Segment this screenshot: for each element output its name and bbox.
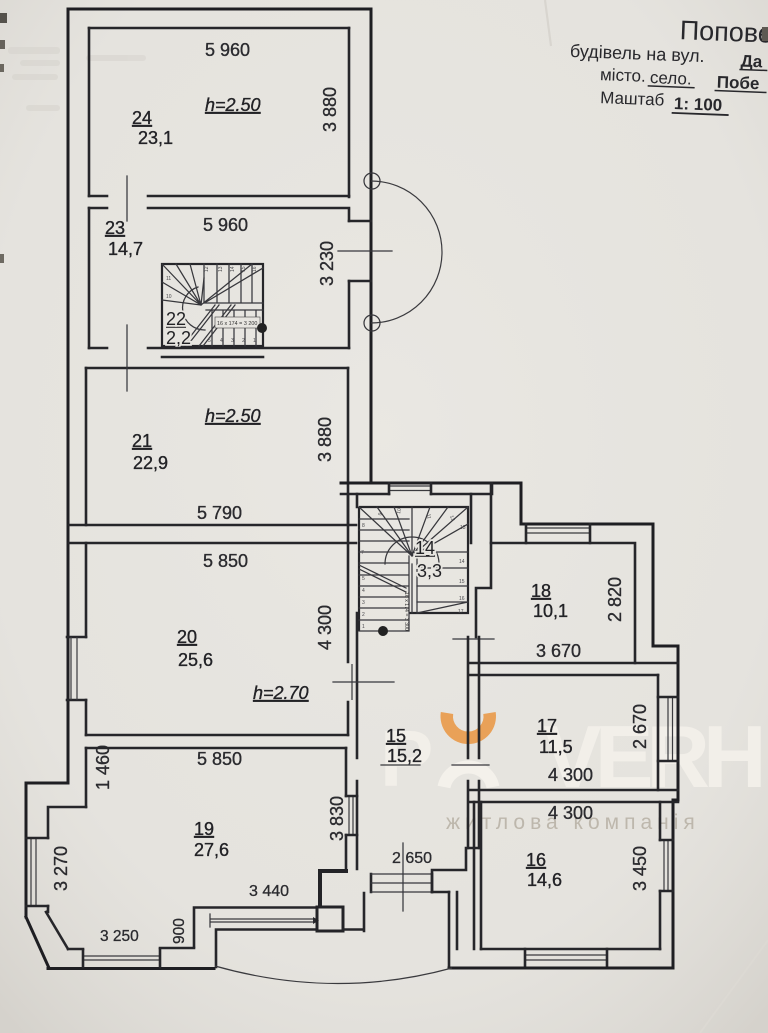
svg-text:5 850: 5 850 [203, 551, 248, 571]
svg-text:10: 10 [166, 294, 172, 300]
svg-text:2: 2 [242, 338, 245, 344]
svg-text:14,7: 14,7 [108, 239, 143, 259]
svg-text:23: 23 [105, 218, 125, 238]
svg-text:17: 17 [458, 609, 464, 615]
svg-text:12: 12 [204, 266, 210, 272]
svg-text:3 880: 3 880 [315, 417, 335, 462]
svg-text:14: 14 [230, 266, 236, 272]
svg-text:4: 4 [220, 338, 223, 344]
svg-text:15: 15 [241, 266, 247, 272]
svg-text:4 300: 4 300 [315, 605, 335, 650]
svg-text:3 830: 3 830 [327, 796, 347, 841]
svg-text:3 440: 3 440 [249, 883, 289, 900]
svg-text:23,1: 23,1 [138, 128, 173, 148]
svg-text:4 300: 4 300 [548, 765, 593, 785]
svg-text:1: 100: 1: 100 [674, 94, 723, 115]
svg-text:14,6: 14,6 [527, 870, 562, 890]
svg-text:2 820: 2 820 [605, 577, 625, 622]
svg-text:5 790: 5 790 [197, 503, 242, 523]
svg-text:22,9: 22,9 [133, 453, 168, 473]
svg-text:20: 20 [177, 627, 197, 647]
svg-text:h=2.50: h=2.50 [205, 95, 261, 115]
svg-text:15,2: 15,2 [387, 746, 422, 766]
svg-text:2 670: 2 670 [630, 704, 650, 749]
svg-text:11: 11 [166, 276, 171, 282]
svg-text:19: 19 [194, 819, 214, 839]
svg-text:17: 17 [537, 716, 557, 736]
svg-text:h=2.70: h=2.70 [253, 683, 309, 703]
svg-text:15: 15 [459, 579, 465, 585]
svg-text:3 270: 3 270 [51, 846, 71, 891]
svg-text:11,5: 11,5 [539, 737, 573, 757]
svg-text:21: 21 [132, 431, 152, 451]
svg-text:5: 5 [208, 338, 211, 344]
svg-text:1 460: 1 460 [93, 745, 113, 790]
svg-text:5 960: 5 960 [205, 40, 250, 60]
svg-text:13: 13 [218, 266, 224, 272]
svg-text:14: 14 [415, 538, 435, 558]
svg-text:16: 16 [526, 850, 546, 870]
svg-text:4 300: 4 300 [548, 803, 593, 823]
svg-text:2: 2 [362, 612, 365, 618]
svg-text:3 450: 3 450 [630, 846, 650, 891]
svg-text:3 250: 3 250 [100, 928, 139, 945]
svg-text:5: 5 [362, 576, 365, 582]
svg-text:5 850: 5 850 [197, 749, 242, 769]
svg-text:900: 900 [171, 918, 188, 944]
svg-text:3: 3 [362, 600, 365, 606]
svg-text:10,1: 10,1 [533, 601, 568, 621]
svg-text:1: 1 [362, 624, 365, 630]
svg-text:13: 13 [460, 525, 466, 531]
svg-text:14: 14 [459, 559, 465, 565]
svg-text:24: 24 [132, 108, 152, 128]
svg-text:16: 16 [459, 596, 465, 602]
svg-text:1: 1 [253, 338, 256, 344]
svg-text:Маштаб: Маштаб [600, 88, 665, 109]
svg-text:16 x 174 = 3 200: 16 x 174 = 3 200 [217, 321, 257, 327]
svg-text:3 230: 3 230 [317, 241, 337, 286]
svg-text:25,6: 25,6 [178, 650, 213, 670]
svg-text:3 670: 3 670 [536, 641, 581, 661]
svg-text:22: 22 [166, 309, 186, 329]
svg-text:2 650: 2 650 [392, 850, 432, 867]
svg-text:18: 18 [531, 581, 551, 601]
svg-text:Попове: Попове [679, 15, 768, 49]
svg-text:8: 8 [362, 523, 365, 529]
svg-text:27,6: 27,6 [194, 840, 229, 860]
svg-text:2,2: 2,2 [166, 328, 191, 348]
svg-text:Да: Да [740, 51, 763, 71]
svg-text:7: 7 [361, 550, 364, 556]
svg-text:місто.: місто. [600, 65, 646, 86]
svg-text:3,3: 3,3 [417, 561, 442, 581]
svg-text:15: 15 [386, 726, 406, 746]
svg-text:16 x 174 = 3 300: 16 x 174 = 3 300 [403, 592, 409, 631]
svg-text:h=2.50: h=2.50 [205, 406, 261, 426]
svg-text:16: 16 [252, 266, 258, 272]
svg-text:4: 4 [362, 588, 365, 594]
svg-text:3 880: 3 880 [320, 87, 340, 132]
svg-text:3: 3 [231, 338, 234, 344]
svg-text:5 960: 5 960 [203, 215, 248, 235]
